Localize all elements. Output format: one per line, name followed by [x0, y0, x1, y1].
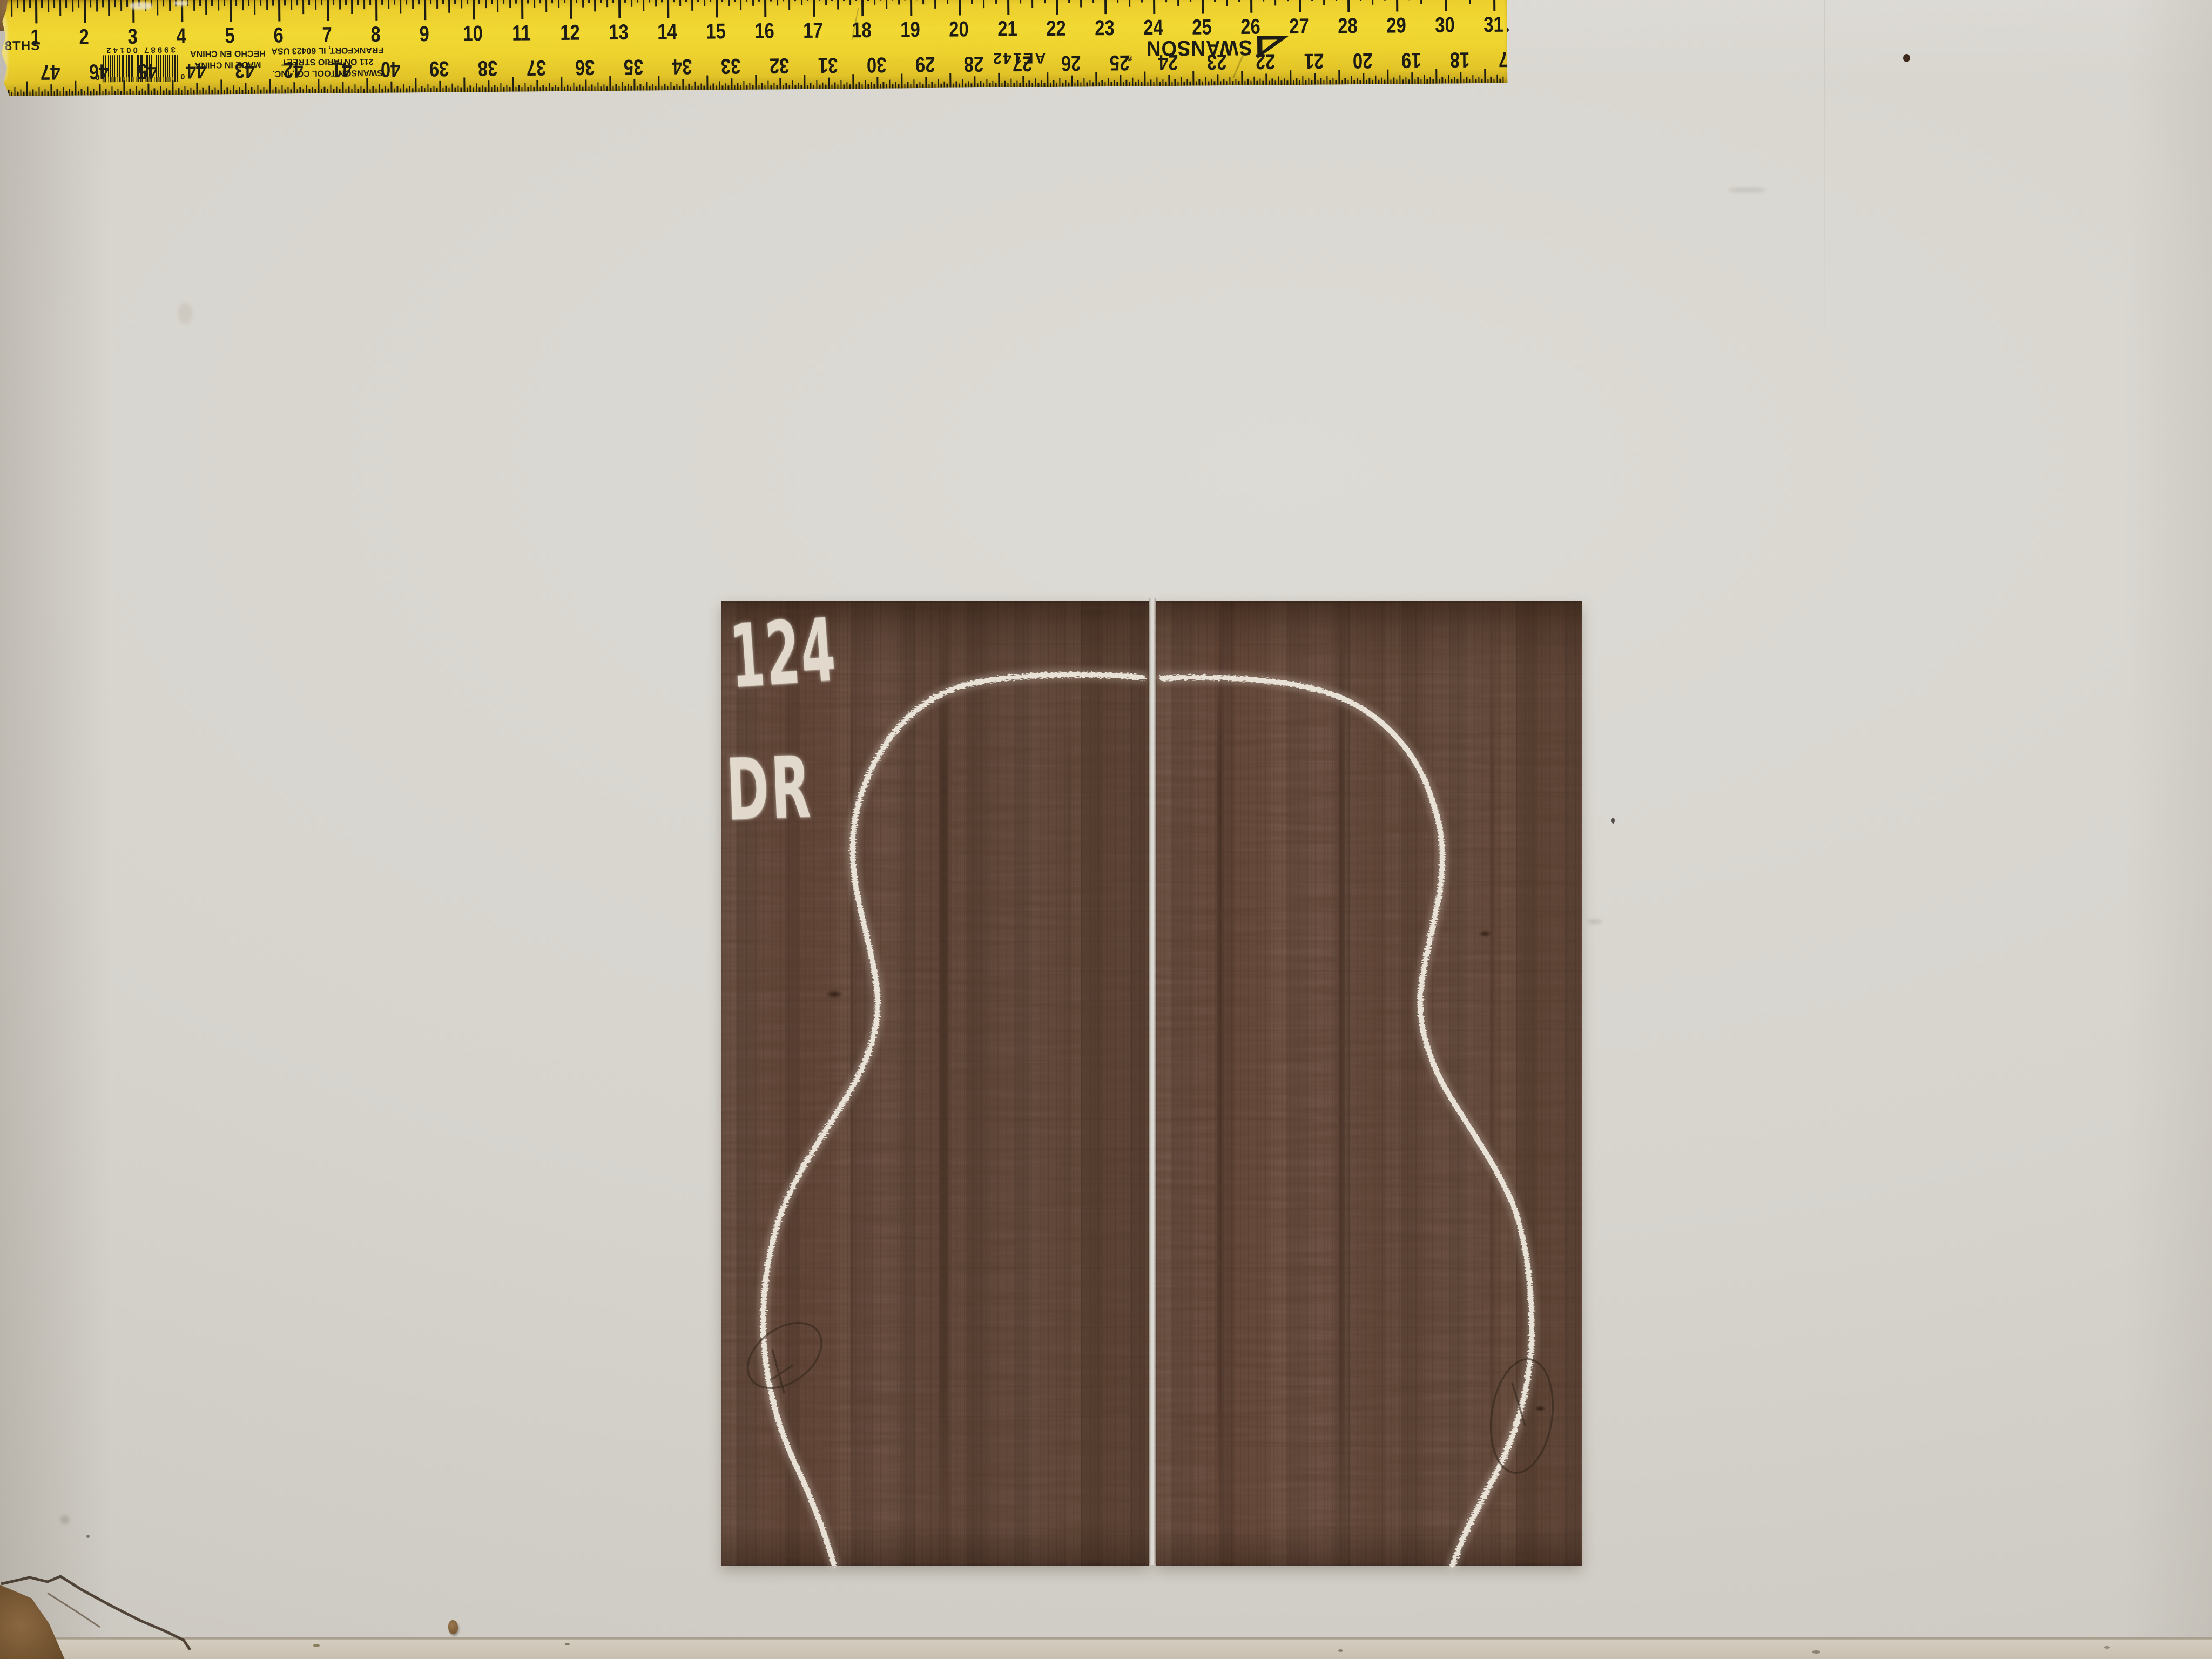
ruler-tick — [1345, 78, 1346, 84]
ruler-wear-mark — [130, 2, 152, 10]
ruler-tick — [1469, 0, 1471, 4]
ruler-tick — [770, 0, 772, 2]
ruler-inch-number: 30 — [867, 54, 887, 76]
ruler-inch-number: 19 — [1401, 49, 1421, 71]
ruler-tick — [342, 82, 343, 93]
ruler-tick — [1263, 81, 1264, 85]
ruler-tick — [433, 86, 435, 92]
ruler-tick — [1284, 78, 1285, 85]
ruler-inch-number: 31 — [818, 54, 838, 76]
ruler-tick — [224, 90, 225, 94]
ruler-tick — [59, 91, 61, 96]
ruler-tick — [962, 79, 963, 87]
ruler-tick — [53, 0, 55, 8]
ruler-tick — [625, 86, 626, 91]
panel-seam-gap — [1149, 598, 1156, 1565]
ruler-tick — [1305, 80, 1307, 85]
ruler-tick — [387, 0, 389, 9]
ruler-tick — [1068, 83, 1070, 87]
ruler-tick — [145, 91, 146, 95]
ruler-tick — [831, 85, 833, 89]
ruler-tick — [776, 0, 778, 5]
ruler-tick — [1387, 70, 1388, 84]
ruler-tick — [1016, 81, 1018, 87]
ruler-tick — [649, 86, 651, 90]
ruler-tick — [801, 85, 802, 89]
ruler-tick — [1302, 76, 1304, 85]
ruler-tick — [643, 86, 644, 91]
ruler-tick — [1232, 81, 1234, 85]
ruler-tick — [71, 0, 73, 12]
ruler-tick — [287, 87, 289, 93]
ruler-tick — [166, 88, 167, 95]
ruler-tick — [269, 79, 271, 94]
ruler-tick — [1338, 70, 1340, 84]
ruler-inch-number: 27 — [1013, 52, 1033, 74]
ruler-tick — [697, 0, 699, 2]
ruler-tick — [749, 83, 751, 90]
ruler-tick — [1257, 81, 1258, 85]
ruler-tick — [147, 84, 149, 95]
ruler-inch-number: 18 — [1450, 49, 1470, 70]
ruler-tick — [898, 84, 900, 88]
ruler-tick — [300, 87, 301, 93]
ruler-tick — [72, 91, 73, 96]
ruler-tick — [1299, 0, 1301, 12]
ruler-tick — [482, 85, 483, 92]
ruler-tick — [1493, 79, 1495, 83]
ruler-tick — [689, 84, 690, 90]
ruler-tick — [35, 91, 37, 96]
ruler-tick — [382, 89, 383, 93]
ruler-tick — [497, 87, 498, 92]
ruler-tick — [710, 0, 711, 2]
ruler-tick — [339, 89, 341, 93]
ruler-tick — [658, 76, 659, 90]
ruler-tick — [1445, 0, 1447, 11]
ruler-tick — [1308, 78, 1310, 85]
ruler-inch-number: 15 — [706, 21, 726, 42]
ruler-tick — [822, 83, 824, 89]
ruler-tick — [1092, 0, 1094, 3]
ruler-tick — [767, 81, 769, 90]
ruler-tick — [980, 81, 982, 87]
ruler-tick — [685, 86, 687, 90]
ruler-wear-mark — [174, 1, 188, 6]
ruler-tick — [78, 91, 79, 96]
ruler-tick — [934, 0, 936, 9]
ruler-tick — [934, 84, 936, 88]
ruler-tick — [442, 88, 444, 92]
ruler-tick — [1129, 0, 1130, 7]
ruler-tick — [1411, 72, 1413, 84]
ruler-tick — [557, 0, 559, 8]
ruler-tick — [995, 83, 997, 87]
ruler-tick — [1062, 83, 1064, 87]
ruler-tick — [1080, 0, 1082, 8]
ruler-tick — [527, 0, 529, 3]
ruler-tick — [603, 84, 605, 91]
chalk-lot-number: 124 — [727, 599, 840, 708]
ruler-tick — [1429, 77, 1431, 84]
guitar-outline-right-half — [1162, 677, 1532, 1565]
ruler-scale-label: 8THS — [5, 38, 41, 54]
ruler-tick — [576, 87, 578, 91]
ruler-inch-number: 11 — [512, 22, 531, 44]
ruler-tick — [606, 0, 608, 7]
ruler-tick — [1162, 79, 1164, 86]
ruler-tick — [35, 0, 37, 23]
ruler-tick — [497, 0, 498, 12]
ruler-tick — [661, 0, 663, 2]
guitar-outline-left-half — [763, 675, 1143, 1564]
ruler-tick — [1111, 82, 1112, 86]
ruler-tick — [1323, 0, 1325, 5]
ruler-tick — [102, 0, 104, 7]
ruler-tick — [1448, 75, 1449, 84]
ruler-tick — [41, 0, 43, 8]
ruler-tick — [281, 85, 283, 93]
ruler-tick — [746, 85, 748, 90]
ruler-tick — [1001, 83, 1003, 87]
ruler-tick — [834, 83, 836, 89]
ruler-tick — [111, 86, 113, 95]
ruler-tick — [946, 0, 948, 4]
ruler-tick — [1238, 81, 1240, 85]
ruler-tick — [1147, 82, 1149, 86]
ruler-tick — [1287, 80, 1289, 85]
ruler-tick — [612, 0, 614, 3]
ruler-inch-number: 37 — [527, 57, 547, 78]
ruler-inch-number: 8 — [370, 24, 381, 45]
ruler-tick — [248, 0, 249, 6]
ruler-tick — [1399, 75, 1401, 84]
ruler-tick — [460, 0, 462, 9]
ruler-tick — [442, 0, 444, 4]
ruler-inch-number: 33 — [721, 55, 741, 77]
ruler-inch-number: 14 — [657, 21, 677, 43]
ruler-tick — [1269, 80, 1270, 85]
ruler-inch-number: 23 — [1207, 51, 1227, 72]
ruler-tick — [670, 82, 672, 90]
ruler-tick — [457, 86, 459, 92]
ruler-tick — [48, 91, 49, 96]
ruler-tick — [959, 0, 961, 16]
pencil-oval-left — [736, 1310, 834, 1401]
ruler-tick — [488, 80, 489, 92]
ruler-tick — [1031, 83, 1033, 87]
ruler-inch-number: 39 — [429, 58, 449, 79]
ruler-tick — [1141, 0, 1142, 3]
ruler-tick — [208, 86, 210, 95]
ruler-tick — [214, 88, 216, 95]
ruler-tick — [278, 89, 280, 93]
ruler-tick — [400, 0, 401, 14]
ruler-tick — [369, 0, 371, 5]
ruler-tick — [321, 0, 322, 5]
ruler-tick — [1427, 79, 1428, 84]
ruler-tick — [1171, 82, 1173, 86]
ruler-tick — [1214, 81, 1216, 85]
ruler-tick — [1056, 0, 1058, 15]
ruler-tick — [956, 82, 957, 88]
ruler-tick — [1414, 79, 1416, 84]
ruler-tick — [758, 85, 760, 90]
ruler-tick — [484, 0, 486, 8]
ruler-tick — [1038, 83, 1040, 87]
ruler-tick — [813, 0, 815, 17]
ruler-tick — [998, 73, 1000, 87]
ruler-tick — [1466, 77, 1468, 83]
ruler-tick — [157, 90, 158, 95]
ruler-inch-number: 19 — [900, 19, 920, 41]
ruler-tick — [463, 77, 465, 92]
ruler-tick — [132, 91, 134, 95]
ruler-tick — [47, 0, 49, 12]
ruler-tick — [230, 90, 231, 94]
ruler-tick — [366, 78, 368, 93]
ruler-tick — [792, 80, 793, 89]
ruler-tick — [467, 0, 468, 4]
ruler-tick — [628, 84, 629, 91]
ruler-tick — [570, 0, 572, 19]
ruler-tick — [291, 89, 292, 93]
ruler-inch-number: 12 — [560, 22, 580, 44]
ruler-tick — [852, 74, 854, 89]
ruler-tick — [418, 88, 420, 92]
ruler-tick — [1135, 82, 1137, 86]
ruler-tick — [673, 0, 675, 2]
ruler-tick — [1384, 0, 1385, 1]
ruler-tick — [1317, 80, 1319, 85]
ruler-tick — [1408, 79, 1410, 84]
ruler-tick — [339, 0, 340, 10]
ruler-tick — [375, 89, 377, 93]
ruler-tick — [1077, 80, 1079, 87]
ruler-tick — [87, 87, 89, 96]
ruler-tick — [761, 83, 763, 90]
ruler-tick — [418, 0, 420, 4]
ruler-tick — [536, 80, 538, 91]
ruler-tick — [716, 85, 717, 90]
ruler-tick — [591, 84, 593, 91]
ruler-tick — [783, 0, 784, 1]
ruler-tick — [1469, 79, 1471, 83]
ruler-tick — [63, 87, 64, 96]
ruler-inch-number: 46 — [89, 60, 109, 82]
ruler-tick — [551, 0, 553, 3]
ruler-tick — [211, 0, 213, 6]
ruler-tick — [136, 86, 137, 95]
ruler-tick — [1484, 69, 1486, 83]
ruler-tick — [643, 0, 644, 11]
ruler-tick — [81, 89, 83, 96]
ruler-tick — [154, 89, 156, 95]
ruler-tick — [123, 80, 125, 95]
ruler-inch-number: 20 — [1353, 50, 1373, 71]
ruler-tick — [616, 84, 617, 91]
ruler-tick — [1199, 79, 1201, 86]
ruler-tick — [949, 73, 951, 88]
ruler-tick — [913, 79, 915, 88]
ruler-tick — [555, 85, 556, 91]
ruler-tick — [1457, 79, 1459, 83]
ruler-tick — [1177, 0, 1179, 6]
ruler-tick — [315, 89, 316, 93]
ruler-tick — [266, 90, 268, 94]
ruler-tick — [354, 84, 356, 93]
ruler-inch-number: 6 — [273, 24, 284, 46]
ruler-tick — [485, 87, 487, 92]
ruler-tick — [743, 81, 745, 90]
ruler-tick — [1083, 78, 1085, 86]
ruler-tick — [448, 0, 450, 13]
ruler-tick — [919, 82, 921, 88]
ruler-tick — [1120, 75, 1121, 86]
ruler-tick — [1138, 80, 1139, 86]
ruler-tick — [500, 83, 502, 92]
ruler-tick — [764, 85, 766, 90]
ruler-tick — [601, 86, 602, 91]
ruler-tick — [1451, 79, 1453, 84]
ruler-tick — [108, 91, 110, 95]
ruler-tick — [1396, 0, 1398, 11]
ruler-tick — [844, 84, 845, 89]
ruler-inch-number: 23 — [1095, 17, 1115, 39]
ruler-tick — [1314, 73, 1316, 85]
ruler-tick — [1323, 80, 1325, 85]
ruler-tick — [755, 75, 757, 90]
ruler-tick — [394, 0, 395, 5]
ruler-tick — [296, 0, 298, 5]
ruler-tick — [1168, 75, 1170, 86]
ruler-tick — [521, 0, 523, 19]
ruler-tick — [11, 0, 12, 17]
ruler-tick — [545, 87, 547, 91]
ruler-tick — [1244, 81, 1246, 85]
ruler-tick — [90, 0, 91, 8]
ruler-tick — [1238, 0, 1239, 2]
ruler-tick — [968, 81, 969, 87]
ruler-tick — [205, 0, 207, 15]
ruler-tick — [190, 88, 192, 95]
ruler-inch-number: 2 — [79, 26, 89, 48]
ruler-tick — [1065, 80, 1067, 87]
ruler-tick — [224, 0, 225, 6]
ruler-tick — [199, 90, 201, 95]
ruler-tick — [1341, 80, 1343, 84]
ruler-tick — [1491, 77, 1492, 83]
ruler-tick — [512, 77, 514, 92]
ruler-inch-number: 22 — [1256, 50, 1276, 72]
ruler-tick — [1454, 77, 1455, 83]
ruler-tick — [251, 87, 253, 94]
ruler-tick — [630, 0, 632, 7]
ruler-tick — [1226, 81, 1228, 85]
ruler-tick — [139, 91, 140, 95]
ruler-tick — [1211, 79, 1212, 85]
ruler-tick — [691, 0, 693, 11]
ruler-tick — [959, 83, 960, 87]
ruler-tick — [314, 0, 316, 10]
ruler-tick — [938, 79, 939, 88]
ruler-tick — [783, 85, 784, 89]
ruler-tick — [1253, 77, 1255, 85]
ruler-tick — [108, 0, 110, 16]
ruler-tick — [886, 84, 887, 89]
ruler-tick — [369, 89, 371, 93]
ruler-tick — [1439, 79, 1440, 84]
ruler-tick — [309, 89, 311, 93]
ruler-tick — [825, 85, 827, 89]
ruler-tick — [716, 0, 718, 17]
ruler-tick — [752, 0, 753, 6]
ruler-tick — [1089, 80, 1091, 86]
ruler-tick — [727, 0, 729, 6]
ruler-tick — [333, 0, 334, 5]
ruler-tick — [588, 0, 590, 3]
chalk-model-code: DR — [725, 738, 814, 840]
ruler-tick — [849, 84, 851, 89]
ruler-tick — [348, 86, 350, 93]
ruler-tick — [1202, 0, 1204, 14]
ruler-tick — [1336, 80, 1337, 84]
ruler-tick — [1123, 82, 1124, 86]
ruler-tick — [947, 84, 948, 88]
ruler-tick — [1354, 80, 1355, 84]
ruler-tick — [986, 79, 988, 87]
ruler-tick — [1095, 72, 1097, 86]
ruler-tick — [649, 0, 650, 3]
ruler-tick — [290, 0, 292, 10]
ruler-tick — [227, 87, 228, 94]
ruler-tick — [1150, 79, 1152, 86]
ruler-tick — [813, 85, 814, 89]
ruler-tick — [23, 0, 24, 12]
ruler-tick — [588, 86, 590, 91]
ruler-tick — [703, 0, 705, 6]
ruler-tick — [1357, 78, 1358, 84]
ruler-tick — [17, 0, 18, 8]
ruler-tick — [667, 86, 669, 90]
ruler-tick — [503, 0, 504, 4]
ruler-tick — [385, 86, 386, 93]
ruler-tick — [1496, 75, 1498, 83]
ruler-tick — [241, 0, 243, 10]
ruler-tick — [533, 0, 535, 8]
ruler-tick — [461, 88, 462, 92]
ruler-tick — [1068, 0, 1069, 3]
ruler-tick — [922, 0, 923, 4]
ruler-inch-number: 17 — [803, 20, 823, 42]
ruler-tick — [29, 0, 31, 8]
ruler-tick — [700, 84, 702, 90]
ruler-tick — [1296, 78, 1298, 85]
ruler-tick — [1286, 0, 1288, 1]
ruler-tick — [218, 90, 219, 94]
ruler-tick — [746, 0, 747, 2]
ruler-tick — [576, 0, 577, 3]
yardstick-ruler: 1234567891011121314151617181920212223242… — [0, 0, 1507, 96]
ruler-tick — [798, 83, 799, 89]
ruler-tick — [1372, 0, 1373, 5]
ruler-inch-number: 40 — [381, 58, 401, 80]
ruler-tick — [1265, 74, 1267, 85]
ruler-tick — [1460, 72, 1461, 83]
ruler-tick — [843, 0, 845, 1]
ruler-tick — [925, 77, 927, 88]
ruler-tick — [205, 90, 207, 95]
